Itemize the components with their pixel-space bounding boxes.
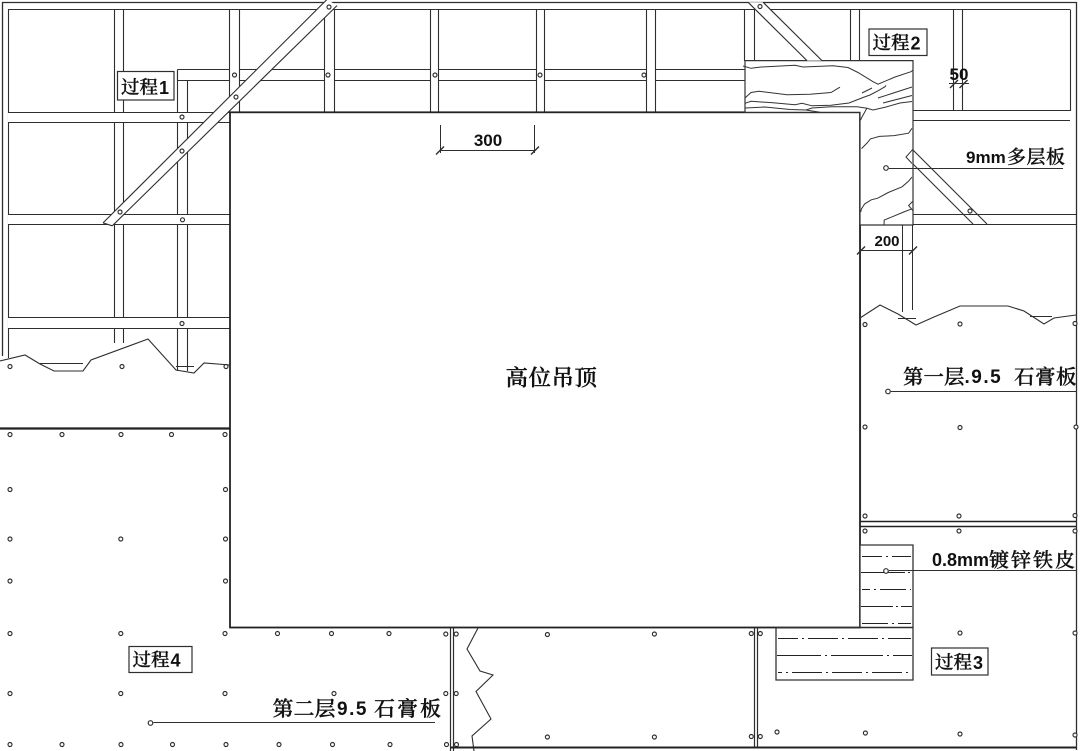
svg-text:9.5: 9.5 [337,699,368,720]
svg-text:1: 1 [159,78,169,98]
svg-text:200: 200 [874,233,899,250]
svg-text:3: 3 [973,653,983,673]
svg-text:9mm: 9mm [966,148,1006,167]
svg-text:4: 4 [171,651,181,671]
svg-text:2: 2 [911,34,921,54]
svg-text:300: 300 [474,131,502,150]
svg-text:0.8mm: 0.8mm [932,550,989,570]
svg-text:.9.5: .9.5 [965,367,1003,388]
